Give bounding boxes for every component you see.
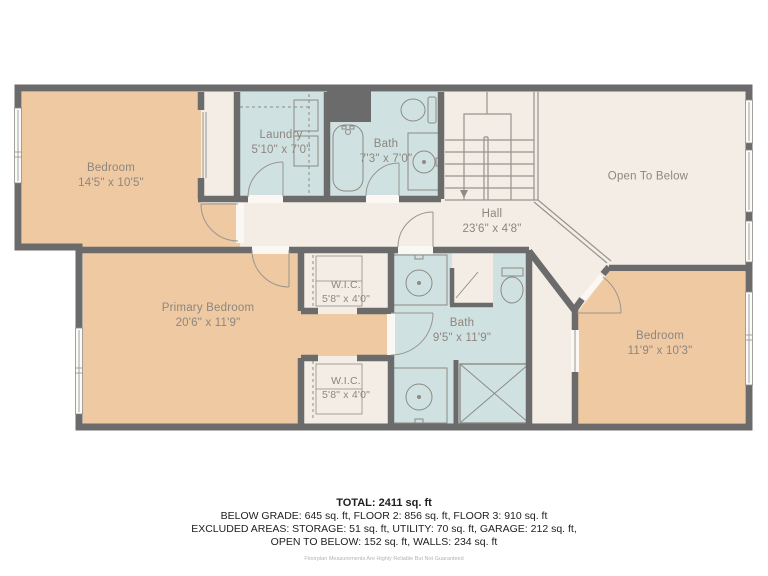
room-dims: 14'5" x 10'5" <box>78 176 144 191</box>
threshold <box>398 246 433 254</box>
threshold <box>366 195 399 203</box>
room-name: W.I.C. <box>322 278 370 292</box>
sink-drain-icon <box>418 282 421 285</box>
room-label-hall: Hall 23'6" x 4'8" <box>462 207 521 237</box>
room-name: Laundry <box>251 128 310 143</box>
summary-line-2: EXCLUDED AREAS: STORAGE: 51 sq. ft, UTIL… <box>0 523 768 536</box>
summary-line-3: OPEN TO BELOW: 152 sq. ft, WALLS: 234 sq… <box>0 536 768 549</box>
room-name: Primary Bedroom <box>162 301 254 316</box>
threshold <box>248 195 283 203</box>
room-name: Bath <box>360 137 412 152</box>
room-dims: 5'8" x 4'0" <box>322 292 370 306</box>
room-dims: 5'10" x 7'0" <box>251 143 310 158</box>
floorplan-page: Bedroom 14'5" x 10'5" Laundry 5'10" x 7'… <box>0 0 768 576</box>
room-label-wic-bottom: W.I.C. 5'8" x 4'0" <box>322 374 370 402</box>
summary-line-1: BELOW GRADE: 645 sq. ft, FLOOR 2: 856 sq… <box>0 510 768 523</box>
room-label-bath-top: Bath 7'3" x 7'0" <box>360 137 412 167</box>
room-dims: 11'9" x 10'3" <box>628 344 693 359</box>
room-name: Bedroom <box>78 161 144 176</box>
room-label-primary-bedroom: Primary Bedroom 20'6" x 11'9" <box>162 301 254 331</box>
sink-drain-icon <box>418 396 421 399</box>
room-dims: 23'6" x 4'8" <box>462 222 521 237</box>
summary-total: TOTAL: 2411 sq. ft <box>0 496 768 510</box>
room-name: Hall <box>462 207 521 222</box>
sink-drain-icon <box>423 161 426 164</box>
room-dims: 5'8" x 4'0" <box>322 388 370 402</box>
room-label-bedroom-right: Bedroom 11'9" x 10'3" <box>628 329 693 359</box>
room-label-laundry: Laundry 5'10" x 7'0" <box>251 128 310 158</box>
room-name: W.I.C. <box>322 374 370 388</box>
room-label-bedroom-top-left: Bedroom 14'5" x 10'5" <box>78 161 144 191</box>
room-name: Open To Below <box>608 170 688 185</box>
threshold <box>236 203 244 243</box>
room-label-open-to-below: Open To Below <box>608 170 688 185</box>
room-dims: 7'3" x 7'0" <box>360 152 412 167</box>
threshold <box>387 314 395 355</box>
floorplan-drawing <box>0 0 768 576</box>
area-summary: TOTAL: 2411 sq. ft BELOW GRADE: 645 sq. … <box>0 496 768 563</box>
chase-block <box>327 88 371 122</box>
room-fill-primary-bedroom <box>83 250 301 427</box>
threshold <box>252 246 289 254</box>
room-label-wic-top: W.I.C. 5'8" x 4'0" <box>322 278 370 306</box>
room-fill-primary-corridor <box>297 314 391 356</box>
room-dims: 9'5" x 11'9" <box>433 331 491 346</box>
room-dims: 20'6" x 11'9" <box>162 316 254 331</box>
room-label-bath-bottom: Bath 9'5" x 11'9" <box>433 316 491 346</box>
room-name: Bedroom <box>628 329 693 344</box>
room-name: Bath <box>433 316 491 331</box>
summary-disclaimer: Floorplan Measurements Are Highly Reliab… <box>0 555 768 563</box>
